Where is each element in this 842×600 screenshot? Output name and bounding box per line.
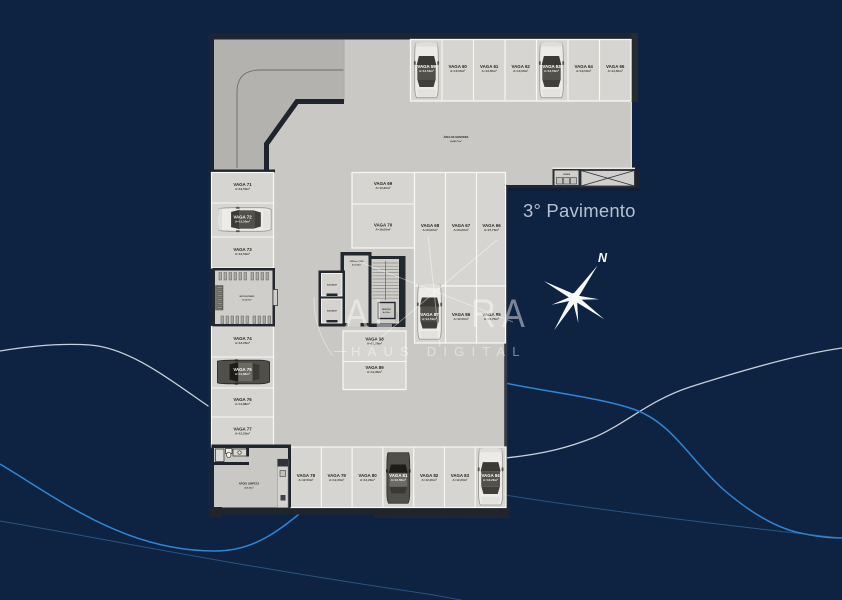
svg-text:A=13,50m²: A=13,50m² [419, 69, 434, 73]
svg-text:A=9,20m²: A=9,20m² [244, 487, 254, 490]
svg-text:ÁREA DE MANOBRA: ÁREA DE MANOBRA [444, 136, 469, 139]
svg-text:A=12,25m²: A=12,25m² [235, 341, 250, 345]
svg-text:A=12,25m²: A=12,25m² [235, 432, 250, 436]
svg-text:A=23,00m²: A=23,00m² [422, 228, 437, 232]
svg-text:A=13,50m²: A=13,50m² [235, 252, 250, 256]
svg-text:A=12,20m²: A=12,20m² [422, 478, 437, 482]
svg-text:A=345,70m²: A=345,70m² [450, 140, 462, 143]
svg-text:APOIO LIMPEZA: APOIO LIMPEZA [239, 482, 260, 486]
svg-text:HAUS DIGITAL: HAUS DIGITAL [351, 344, 527, 359]
svg-text:A=13,50m²: A=13,50m² [608, 69, 623, 73]
svg-text:A=12,20m²: A=12,20m² [329, 478, 344, 482]
svg-text:A=12,20m²: A=12,20m² [483, 478, 498, 482]
svg-text:A=13,50m²: A=13,50m² [544, 69, 559, 73]
svg-text:ELEVADOR: ELEVADOR [327, 284, 338, 287]
svg-text:A=13,50m²: A=13,50m² [482, 69, 497, 73]
svg-text:N: N [598, 251, 608, 265]
svg-text:A=11,86m²: A=11,86m² [235, 372, 250, 376]
svg-text:A=19,00m²: A=19,00m² [375, 228, 390, 232]
svg-text:3° Pavimento: 3° Pavimento [523, 200, 636, 221]
svg-text:A=13,50m²: A=13,50m² [235, 220, 250, 224]
svg-text:A=11,88m²: A=11,88m² [235, 402, 250, 406]
svg-text:A=14,70m²: A=14,70m² [242, 299, 252, 302]
svg-text:A=12,20m²: A=12,20m² [452, 478, 467, 482]
svg-text:A=13,50m²: A=13,50m² [576, 69, 591, 73]
svg-text:A=13,30m²: A=13,30m² [375, 186, 390, 190]
svg-text:A=12,50m²: A=12,50m² [391, 478, 406, 482]
svg-text:A=12,50m²: A=12,50m² [298, 478, 313, 482]
svg-text:ELEVADOR: ELEVADOR [327, 310, 338, 313]
svg-text:BICICLETÁRIO: BICICLETÁRIO [240, 295, 255, 298]
svg-text:A=12,20m²: A=12,20m² [360, 478, 375, 482]
svg-text:A=13,50m²: A=13,50m² [513, 69, 528, 73]
svg-text:A=13,50m²: A=13,50m² [235, 187, 250, 191]
svg-text:LIXEIRA: LIXEIRA [563, 173, 571, 176]
svg-text:A=10,60m²: A=10,60m² [352, 264, 361, 267]
svg-text:A=11,35m²: A=11,35m² [367, 370, 382, 374]
svg-text:A=23,00m²: A=23,00m² [453, 228, 468, 232]
svg-text:A=27,70m²: A=27,70m² [484, 228, 499, 232]
svg-text:A=12,50m²: A=12,50m² [422, 317, 437, 321]
svg-text:A=12,50m²: A=12,50m² [453, 317, 468, 321]
svg-text:RA: RA [471, 291, 531, 336]
svg-text:A=13,50m²: A=13,50m² [450, 69, 465, 73]
